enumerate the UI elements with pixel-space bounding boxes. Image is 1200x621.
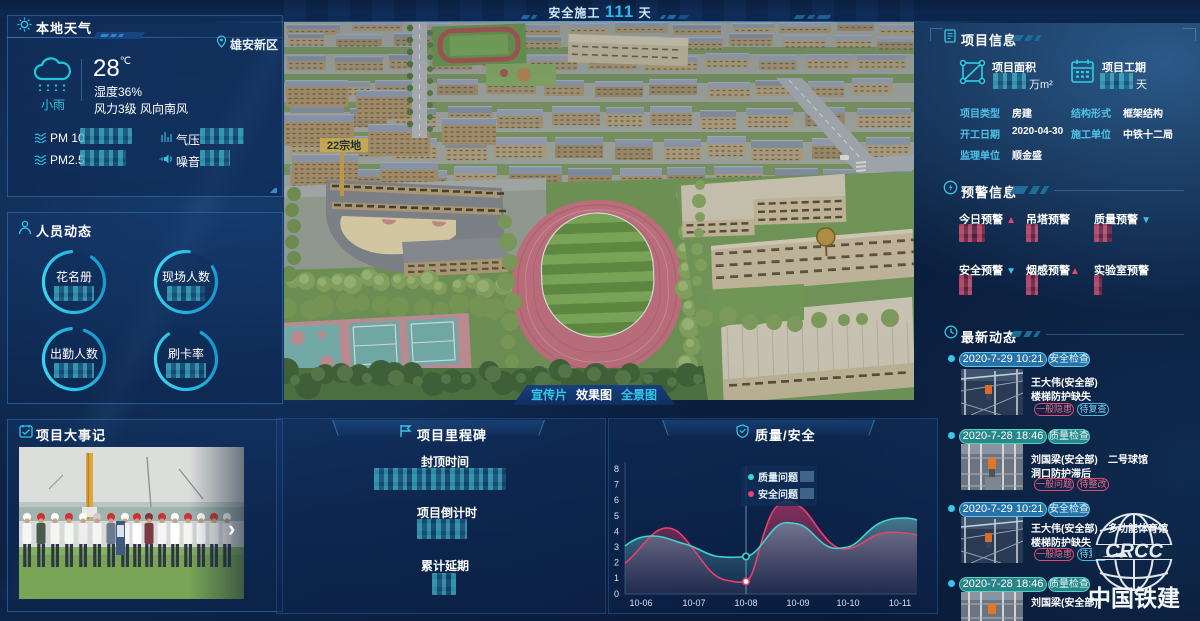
svg-text:4: 4 (614, 526, 619, 536)
svg-text:10-09: 10-09 (786, 598, 809, 608)
svg-text:10-06: 10-06 (629, 598, 652, 608)
svg-text:1: 1 (614, 573, 619, 583)
svg-text:7: 7 (614, 480, 619, 490)
svg-text:10-10: 10-10 (836, 598, 859, 608)
svg-text:2: 2 (614, 558, 619, 568)
svg-text:安全问题: 安全问题 (758, 488, 799, 501)
svg-text:6: 6 (614, 495, 619, 505)
svg-text:5: 5 (614, 511, 619, 521)
svg-text:22宗地: 22宗地 (327, 138, 361, 152)
svg-text:10-08: 10-08 (734, 598, 757, 608)
svg-text:8: 8 (614, 464, 619, 474)
svg-text:10-11: 10-11 (889, 598, 911, 608)
svg-text:10-07: 10-07 (682, 598, 705, 608)
svg-text:质量问题: 质量问题 (758, 471, 799, 484)
svg-text:0: 0 (614, 589, 619, 599)
svg-text:CRCC: CRCC (1105, 541, 1163, 563)
svg-text:3: 3 (614, 542, 619, 552)
